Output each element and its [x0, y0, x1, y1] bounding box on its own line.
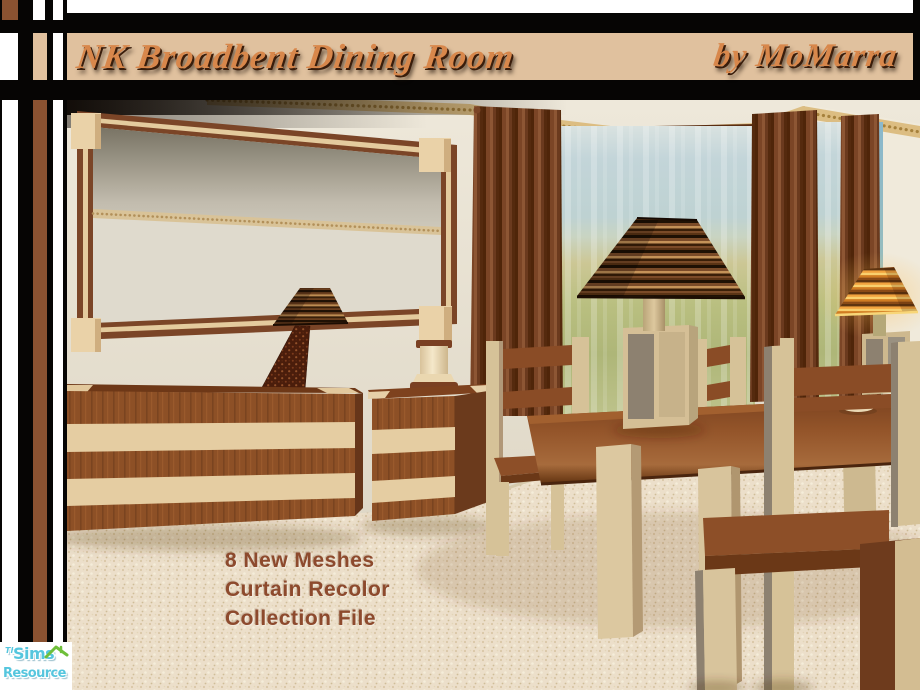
page-title: NK Broadbent Dining Room: [75, 39, 517, 74]
plaid-white-column: [2, 100, 18, 642]
plaid-white-column-2: [53, 100, 63, 642]
title-band: NK Broadbent Dining Room by MoMarra: [67, 33, 913, 80]
caption-line-1: 8 New Meshes: [225, 546, 390, 575]
plaid-white-row-block: [0, 33, 18, 80]
tsr-promo-image: NK Broadbent Dining Room by MoMarra: [0, 0, 920, 690]
plaid-white-tab-2: [53, 0, 63, 20]
end-table: [368, 384, 496, 521]
top-white-band: [67, 0, 913, 13]
room-render: [67, 100, 920, 690]
logo-resource: Resource: [3, 667, 66, 680]
plaid-white-row-block-2: [53, 33, 63, 80]
plaid-tan-row-block: [33, 33, 47, 80]
feature-caption: 8 New Meshes Curtain Recolor Collection …: [225, 546, 390, 633]
caption-line-2: Curtain Recolor: [225, 575, 390, 604]
plaid-white-tab-1: [33, 0, 45, 20]
roof-icon: [44, 644, 70, 660]
sims-resource-logo: The Sims Resource: [0, 642, 72, 690]
wall-mirror: [71, 111, 457, 352]
caption-line-3: Collection File: [225, 604, 390, 633]
sideboard: [67, 384, 363, 531]
plaid-brown-column: [33, 100, 47, 642]
plaid-brown-square: [2, 0, 18, 20]
author-byline: by MoMarra: [711, 40, 899, 73]
drape-curtain-left: [470, 106, 563, 416]
